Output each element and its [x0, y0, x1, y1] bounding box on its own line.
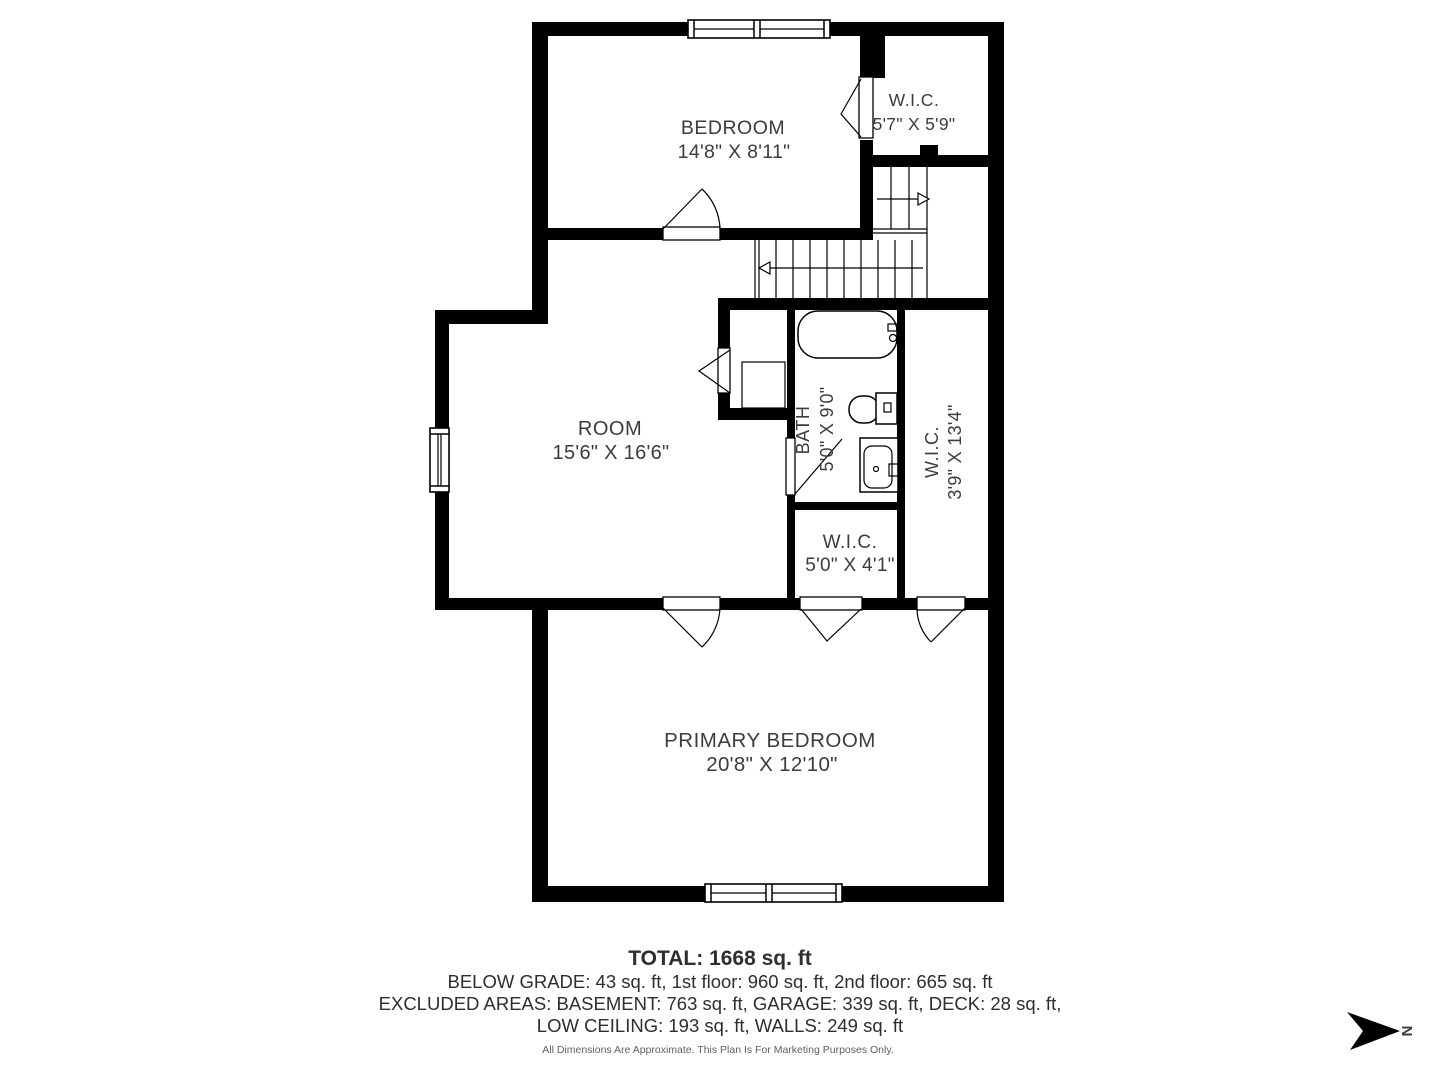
room-label-wic-right: W.I.C. 3'9" X 13'4"	[922, 404, 965, 499]
bathtub	[798, 311, 898, 358]
wall-room-bottom-2	[720, 598, 800, 610]
door-bedroom-wic	[841, 77, 873, 138]
toilet-tank	[876, 393, 897, 424]
stair-down-arrow	[759, 262, 923, 274]
total-area-text: TOTAL: 1668 sq. ft	[628, 947, 812, 970]
wic-small-dims: 5'0" X 4'1"	[805, 555, 895, 576]
primary-dims: 20'8" X 12'10"	[706, 753, 837, 776]
wall-closet-bottom	[718, 408, 795, 420]
bath-name: BATH	[793, 406, 813, 455]
door-wic-small-bifold	[800, 597, 862, 641]
below-grade-text: BELOW GRADE: 43 sq. ft, 1st floor: 960 s…	[448, 971, 993, 992]
floor-plan-page: BEDROOM 14'8" X 8'11" W.I.C. 5'7" X 5'9"…	[0, 0, 1440, 1080]
door-primary-to-wic-right	[917, 597, 965, 642]
area-summary: TOTAL: 1668 sq. ft BELOW GRADE: 43 sq. f…	[379, 947, 1062, 1056]
toilet	[849, 393, 897, 424]
wall-closet-left-upper	[718, 298, 730, 350]
wall-bath-left-lower	[787, 495, 795, 598]
toilet-bowl	[849, 396, 879, 423]
disclaimer-text: All Dimensions Are Approximate. This Pla…	[542, 1044, 894, 1056]
room-label-bedroom: BEDROOM 14'8" X 8'11"	[678, 117, 791, 163]
door-room-closet	[699, 348, 730, 393]
room-label-wic-small: W.I.C. 5'0" X 4'1"	[805, 532, 895, 576]
bedroom-dims: 14'8" X 8'11"	[678, 141, 791, 163]
wic-right-dims: 3'9" X 13'4"	[945, 404, 965, 499]
wall-bedroom-bottom-1	[532, 228, 663, 240]
wall-wic-stub	[920, 145, 938, 157]
room-dims: 15'6" X 16'6"	[553, 442, 670, 464]
wall-right	[988, 22, 1004, 902]
window-room-left	[430, 428, 449, 492]
compass: N	[1347, 1012, 1415, 1050]
wall-step-left	[435, 310, 548, 324]
wall-primary-left	[532, 598, 548, 902]
wic-small-name: W.I.C.	[823, 532, 878, 553]
wall-bath-bottom	[787, 502, 905, 510]
door-bedroom	[663, 189, 720, 240]
north-label: N	[1398, 1026, 1415, 1037]
room-label-room: ROOM 15'6" X 16'6"	[553, 418, 670, 464]
window-primary-bottom	[705, 884, 842, 902]
wall-bedroom-left	[532, 22, 548, 318]
bedroom-name: BEDROOM	[681, 117, 785, 139]
window-bedroom-top	[688, 20, 830, 38]
wall-midband-top	[718, 298, 1004, 310]
wall-bedroom-bottom-2	[720, 228, 868, 240]
north-arrow-icon	[1347, 1012, 1400, 1050]
excluded-areas-text: EXCLUDED AREAS: BASEMENT: 763 sq. ft, GA…	[379, 993, 1062, 1014]
low-ceiling-text: LOW CEILING: 193 sq. ft, WALLS: 249 sq. …	[537, 1015, 903, 1036]
stair-up-arrow	[877, 193, 929, 205]
sink-vanity	[860, 438, 898, 492]
wall-room-bottom-1	[435, 598, 663, 610]
wall-room-bottom-3	[862, 598, 917, 610]
wic-top-name: W.I.C.	[889, 90, 940, 110]
room-label-wic-top: W.I.C. 5'7" X 5'9"	[873, 90, 956, 134]
wall-wic-top-stub	[860, 22, 885, 78]
wic-right-name: W.I.C.	[922, 426, 942, 478]
closet-shelf	[742, 362, 785, 408]
wic-top-dims: 5'7" X 5'9"	[873, 114, 956, 134]
bath-dims: 5'0" X 9'0"	[817, 386, 837, 471]
room-name: ROOM	[578, 418, 642, 440]
floor-plan-drawing: BEDROOM 14'8" X 8'11" W.I.C. 5'7" X 5'9"…	[0, 0, 1440, 1080]
room-label-bath: BATH 5'0" X 9'0"	[793, 386, 837, 471]
door-room-to-primary	[663, 597, 720, 647]
primary-name: PRIMARY BEDROOM	[664, 729, 876, 752]
room-label-primary: PRIMARY BEDROOM 20'8" X 12'10"	[664, 729, 876, 776]
